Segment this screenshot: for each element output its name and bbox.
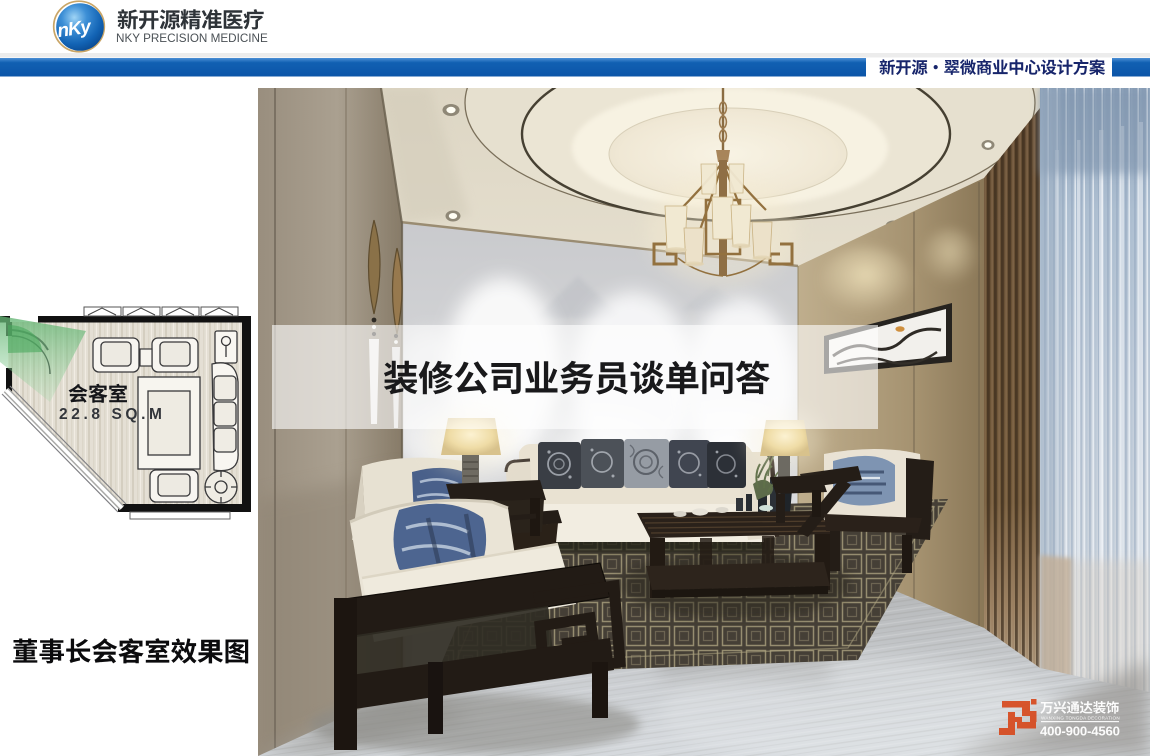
- svg-text:NKY PRECISION MEDICINE: NKY PRECISION MEDICINE: [116, 32, 268, 45]
- svg-text:22.8 SQ.M: 22.8 SQ.M: [59, 406, 166, 423]
- svg-text:WANXING TONGDA DECORATION: WANXING TONGDA DECORATION: [1041, 716, 1120, 721]
- svg-text:400-900-4560: 400-900-4560: [1040, 724, 1120, 739]
